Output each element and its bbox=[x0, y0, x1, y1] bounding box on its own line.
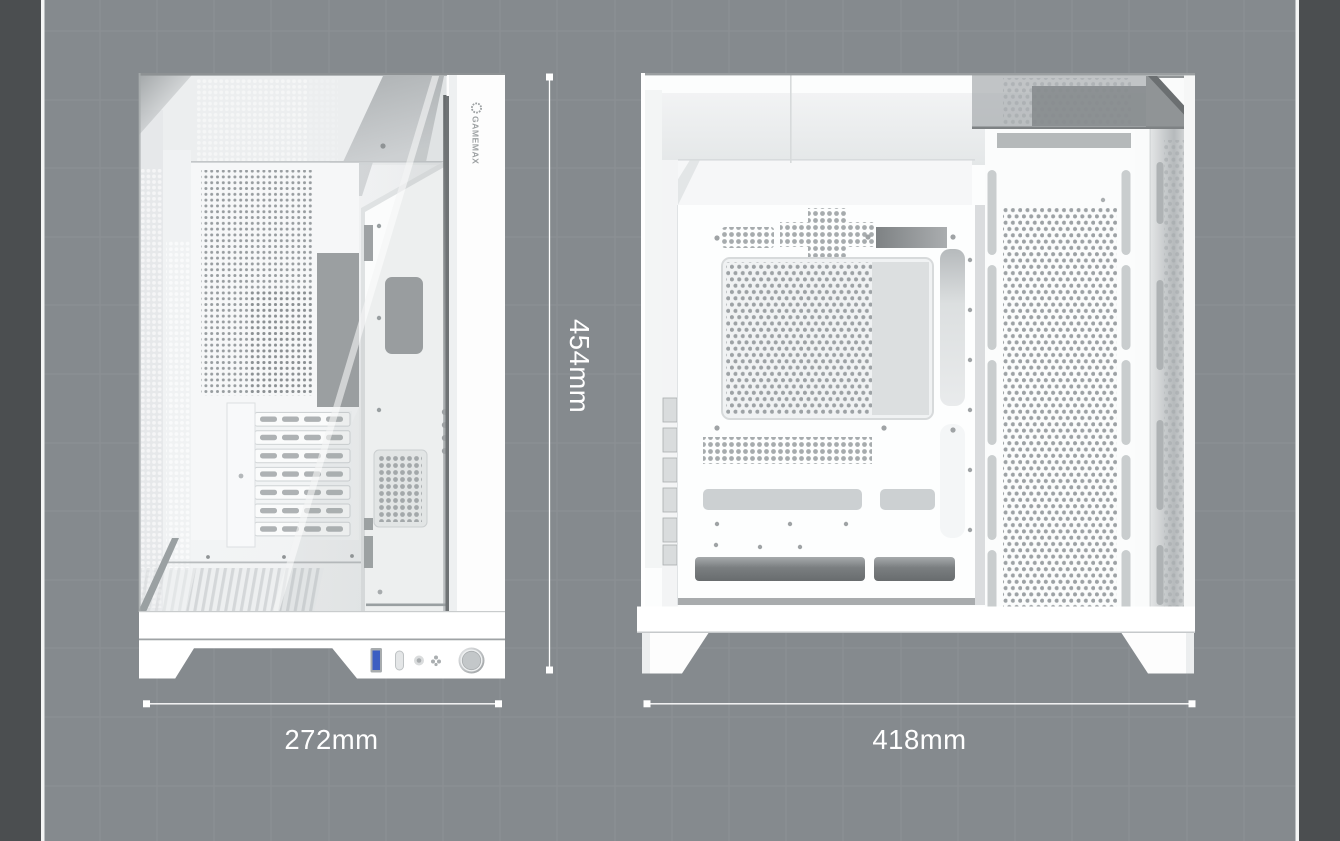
svg-text:GAMEMAX: GAMEMAX bbox=[471, 116, 481, 164]
svg-text:454mm: 454mm bbox=[564, 319, 595, 413]
svg-text:418mm: 418mm bbox=[872, 724, 966, 755]
svg-text:272mm: 272mm bbox=[284, 724, 378, 755]
